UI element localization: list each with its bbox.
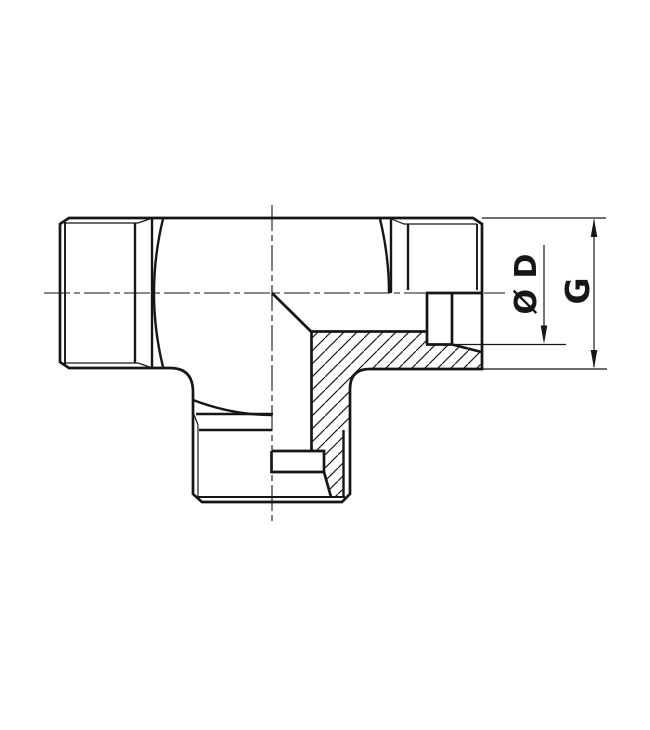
internal-section-edges — [272, 293, 483, 497]
dimension-d-label: Ø D — [509, 254, 544, 315]
tee-fitting-technical-drawing: Ø D G — [0, 0, 650, 730]
dimension-d: Ø D — [452, 245, 566, 345]
technical-drawing-page: Ø D G — [0, 0, 650, 730]
dimension-g-arrowhead-down-icon — [591, 350, 598, 369]
dimension-g-arrowhead-up-icon — [591, 219, 598, 238]
section-hatching — [312, 332, 482, 497]
dimension-g-label: G — [558, 277, 597, 304]
dimension-d-arrowhead-icon — [541, 326, 548, 345]
thread-detail-right-port — [380, 218, 477, 293]
